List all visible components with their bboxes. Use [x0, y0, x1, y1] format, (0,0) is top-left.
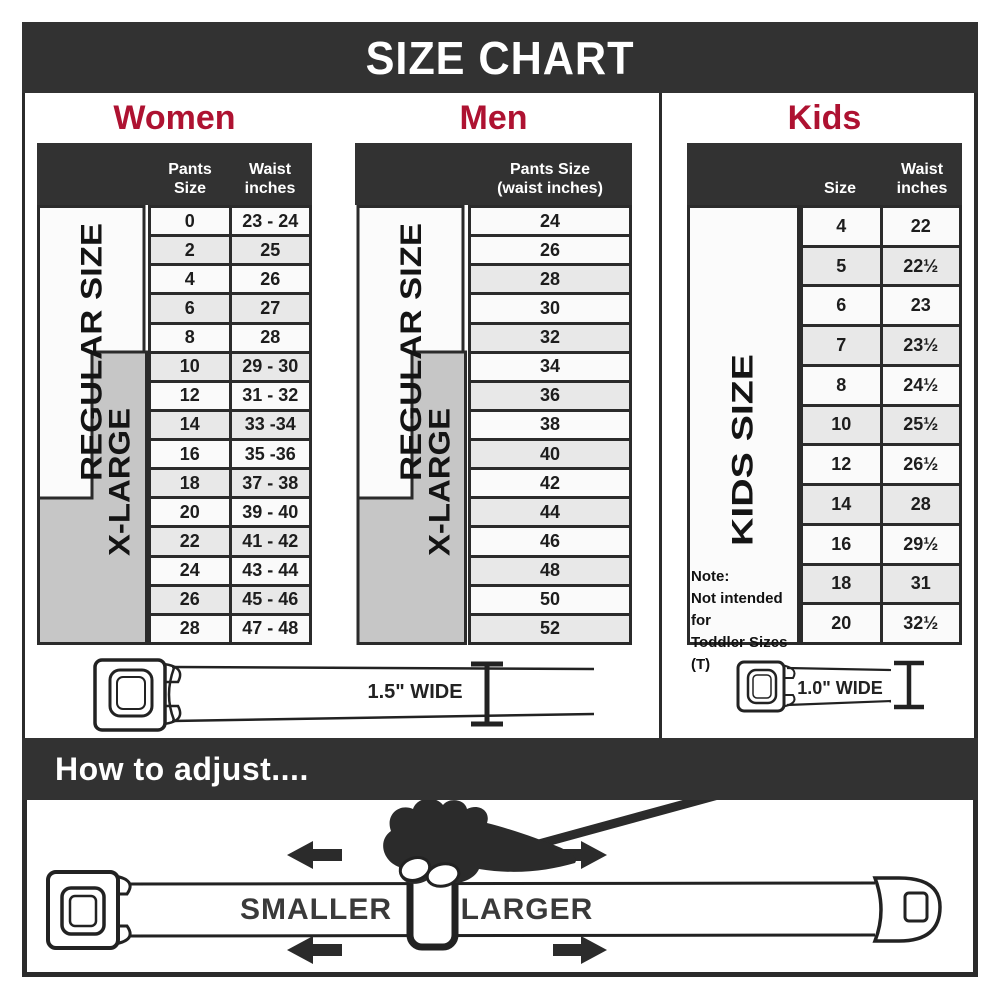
belt-strap-bottom-edge [787, 701, 891, 705]
kids-size-table: 422522½623723½824½1025½1226½14281629½183… [800, 205, 962, 645]
smaller-label: SMALLER [240, 893, 380, 927]
kids-size-cell: 18 [803, 566, 880, 603]
belt-strap-top-edge [787, 668, 891, 670]
women-pants-size-cell: 24 [151, 558, 229, 584]
kids-belt-width-label: 1.0" WIDE [785, 678, 895, 699]
men-pants-size-cell: 28 [471, 266, 629, 292]
kids-waist-cell: 32½ [883, 605, 960, 642]
buckle-button-inner [117, 677, 145, 709]
kids-heading: Kids [687, 96, 962, 140]
women-pants-size-cell: 12 [151, 383, 229, 409]
kids-table-header: Size Waistinches [687, 143, 962, 205]
belt-strap-top-edge [172, 667, 594, 669]
kids-size-cell: 20 [803, 605, 880, 642]
women-waist-cell: 43 - 44 [232, 558, 310, 584]
women-pants-size-cell: 14 [151, 412, 229, 438]
women-size-table: 023 - 242254266278281029 - 301231 - 3214… [148, 205, 312, 645]
men-pants-size-cell: 32 [471, 325, 629, 351]
women-pants-size-cell: 22 [151, 528, 229, 554]
women-heading: Women [37, 96, 312, 140]
page-title: SIZE CHART [366, 31, 635, 85]
women-waist-cell: 45 - 46 [232, 587, 310, 613]
men-pants-size-cell: 40 [471, 441, 629, 467]
men-pants-size-cell: 48 [471, 558, 629, 584]
kids-size-cell: 5 [803, 248, 880, 285]
women-waist-cell: 27 [232, 295, 310, 321]
women-pants-size-cell: 6 [151, 295, 229, 321]
men-pants-size-cell: 26 [471, 237, 629, 263]
men-pants-size-cell: 36 [471, 383, 629, 409]
women-waist-cell: 33 -34 [232, 412, 310, 438]
arrow-right-icon [553, 936, 607, 964]
larger-label: LARGER [457, 893, 597, 927]
men-pants-size-cell: 50 [471, 587, 629, 613]
size-chart-page: SIZE CHART Women Men Kids Pants Size Wai… [0, 0, 1000, 1000]
men-pants-size-cell: 34 [471, 354, 629, 380]
kids-size-cell: 4 [803, 208, 880, 245]
women-pants-size-cell: 20 [151, 499, 229, 525]
content-border-left [22, 93, 25, 738]
kids-note-line2: Not intended for [691, 590, 783, 629]
arrow-left-icon [287, 841, 342, 869]
kids-col-size: Size [800, 179, 880, 198]
kids-size-cell: 7 [803, 327, 880, 364]
kids-waist-cell: 28 [883, 486, 960, 523]
women-pants-size-cell: 26 [151, 587, 229, 613]
women-waist-cell: 31 - 32 [232, 383, 310, 409]
kids-size-cell: 8 [803, 367, 880, 404]
men-table-header: Pants Size(waist inches) [355, 143, 632, 205]
adult-belt-illustration [88, 652, 613, 737]
women-waist-cell: 41 - 42 [232, 528, 310, 554]
women-table-header: Pants Size Waistinches [37, 143, 312, 205]
men-pants-size-cell: 46 [471, 528, 629, 554]
kids-waist-cell: 29½ [883, 526, 960, 563]
kids-waist-cell: 26½ [883, 446, 960, 483]
buckle-button-inner [753, 675, 771, 698]
men-xlarge-label: X-LARGE [424, 408, 457, 556]
men-size-table: 242628303234363840424446485052 [468, 205, 632, 645]
men-pants-size-cell: 30 [471, 295, 629, 321]
women-waist-cell: 23 - 24 [232, 208, 310, 234]
arrow-left-icon [287, 936, 342, 964]
content-border-right [974, 93, 978, 738]
how-to-adjust-heading: How to adjust.... [55, 751, 309, 788]
kids-waist-cell: 22 [883, 208, 960, 245]
men-pants-size-cell: 38 [471, 412, 629, 438]
women-waist-cell: 37 - 38 [232, 470, 310, 496]
adjustment-diagram [27, 800, 973, 972]
kids-size-label: KIDS SIZE [727, 354, 760, 546]
kids-waist-cell: 31 [883, 566, 960, 603]
women-pants-size-cell: 18 [151, 470, 229, 496]
men-pants-size-cell: 24 [471, 208, 629, 234]
women-waist-cell: 47 - 48 [232, 616, 310, 642]
kids-size-cell: 12 [803, 446, 880, 483]
women-pants-size-cell: 2 [151, 237, 229, 263]
belt-strap-bottom-edge [121, 935, 875, 936]
adult-belt-width-label: 1.5" WIDE [355, 681, 475, 704]
women-pants-size-cell: 4 [151, 266, 229, 292]
women-size-zones: REGULAR SIZE X-LARGE [37, 205, 148, 645]
belt-strap-top-edge [121, 883, 875, 884]
men-pants-size-cell: 44 [471, 499, 629, 525]
section-divider [659, 93, 662, 738]
kids-waist-cell: 22½ [883, 248, 960, 285]
women-waist-cell: 26 [232, 266, 310, 292]
kids-col-waist: Waistinches [882, 160, 962, 198]
buckle-button-inner [70, 896, 96, 926]
how-to-adjust-band: How to adjust.... [22, 738, 978, 800]
men-heading: Men [355, 96, 632, 140]
women-waist-cell: 28 [232, 325, 310, 351]
women-pants-size-cell: 10 [151, 354, 229, 380]
women-pants-size-cell: 28 [151, 616, 229, 642]
women-xlarge-label: X-LARGE [104, 408, 137, 556]
women-pants-size-cell: 16 [151, 441, 229, 467]
kids-size-cell: 16 [803, 526, 880, 563]
kids-note-line1: Note: [691, 568, 729, 585]
kids-size-cell: 6 [803, 287, 880, 324]
title-band: SIZE CHART [22, 22, 978, 93]
women-col-waist: Waistinches [230, 160, 310, 198]
women-pants-size-cell: 8 [151, 325, 229, 351]
men-pants-size-cell: 52 [471, 616, 629, 642]
men-pants-size-cell: 42 [471, 470, 629, 496]
kids-size-cell: 14 [803, 486, 880, 523]
kids-waist-cell: 25½ [883, 407, 960, 444]
kids-size-cell: 10 [803, 407, 880, 444]
women-waist-cell: 35 -36 [232, 441, 310, 467]
women-waist-cell: 29 - 30 [232, 354, 310, 380]
men-size-zones: REGULAR SIZE X-LARGE [355, 205, 468, 645]
kids-waist-cell: 23 [883, 287, 960, 324]
women-waist-cell: 39 - 40 [232, 499, 310, 525]
women-col-pants-size: Pants Size [150, 160, 230, 198]
women-waist-cell: 25 [232, 237, 310, 263]
men-col-pants-size: Pants Size(waist inches) [468, 160, 632, 198]
kids-waist-cell: 23½ [883, 327, 960, 364]
belt-tail-hole [905, 893, 927, 921]
kids-waist-cell: 24½ [883, 367, 960, 404]
women-pants-size-cell: 0 [151, 208, 229, 234]
belt-strap-bottom-edge [172, 714, 594, 721]
